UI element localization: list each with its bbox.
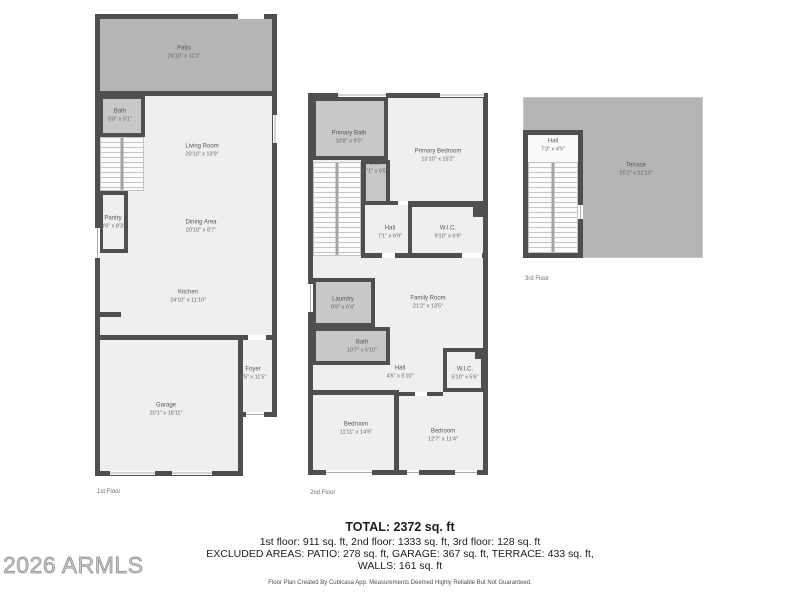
room-label-garage: Garage 20'1" x 18'11" (150, 403, 183, 418)
room-label-bath-lower: Bath 10'7" x 5'10" (347, 340, 377, 355)
room-label-primary-bedroom: Primary Bedroom 13'10" x 15'2" (415, 149, 462, 164)
armls-watermark: 2026 ARMLS (3, 552, 144, 579)
bedroom2-window-2 (455, 470, 477, 475)
second-floor-caption: 2nd Floor (310, 490, 335, 496)
stairs-1f (100, 137, 144, 191)
first-floor-caption: 1st Floor (97, 489, 120, 495)
room-label-kitchen: Kitchen 24'10" x 11'10" (170, 290, 206, 305)
room-primary-bath (312, 97, 388, 160)
laundry-window (308, 284, 313, 312)
hall-3f-opening (578, 205, 583, 219)
floor-areas: 1st floor: 911 sq. ft, 2nd floor: 1333 s… (0, 536, 800, 548)
room-label-living-room: Living Room 20'10" x 13'9" (185, 144, 218, 159)
room-label-hall-lower: Hall 4'6" x 5'10" (386, 366, 413, 381)
total-area: TOTAL: 2372 sq. ft (0, 520, 800, 536)
third-floor-caption: 3rd Floor (525, 276, 549, 282)
stairs-2f (313, 162, 361, 256)
bedroom1-top-wall (312, 390, 396, 395)
2f-top-window-2 (440, 93, 484, 97)
foyer-window (246, 412, 264, 417)
bedroom1-window (326, 470, 372, 475)
room-label-family-room: Family Room 21'2" x 13'5" (410, 296, 445, 311)
dining-window (95, 228, 100, 258)
hall-right-wall (408, 201, 412, 258)
room-label-laundry: Laundry 8'6" x 6'4" (331, 297, 355, 312)
bedroom-divider-wall (394, 390, 399, 475)
room-label-bath-1f: Bath 5'8" x 5'1" (108, 109, 132, 124)
wic-door-gap (462, 253, 482, 258)
bedroom2-door-gap (415, 392, 427, 396)
room-label-terrace: Terrace 25'2" x 22'10" (619, 163, 652, 178)
bedroom2-window-1 (407, 470, 419, 475)
room-label-bedroom-1: Bedroom 11'11" x 14'9" (340, 422, 372, 437)
kitchen-foyer-opening (248, 335, 266, 340)
garage-window-2 (172, 471, 212, 475)
room-label-hall-3f: Hall 7'3" x 4'5" (541, 139, 565, 154)
hall-door-gap (382, 253, 395, 258)
room-label-dining-area: Dining Area 20'10" x 8'7" (185, 220, 216, 235)
room-label-wic-lower: W.I.C. 5'10" x 5'6" (451, 367, 478, 382)
disclaimer-note: Floor Plan Created By Cubicasa App. Meas… (0, 580, 800, 586)
room-label-hall-upper: Hall 7'1" x 6'9" (378, 226, 402, 241)
room-label-pantry: Pantry 3'6" x 8'3" (101, 216, 125, 231)
living-room-window (273, 115, 277, 143)
room-label-wic-upper: W.I.C. 9'10" x 6'9" (434, 226, 461, 241)
wic-lower-closet-block (475, 348, 488, 359)
kitchen-wall-stub (99, 312, 121, 317)
room-label-bedroom-2: Bedroom 12'7" x 11'4" (428, 429, 458, 444)
room-label-bath-upper: Bath 7'1" x 6'5" (364, 161, 388, 176)
garage-window-1 (110, 471, 155, 475)
room-label-primary-bath: Primary Bath 10'8" x 9'0" (332, 131, 367, 146)
room-label-foyer: Foyer 5'5" x 11'5" (240, 367, 267, 382)
wic-upper-closet-block (473, 207, 488, 217)
room-label-patio: Patio 24'10" x 11'2" (168, 46, 201, 61)
stairs-3f (528, 162, 578, 253)
patio-wall-opening (238, 14, 264, 19)
